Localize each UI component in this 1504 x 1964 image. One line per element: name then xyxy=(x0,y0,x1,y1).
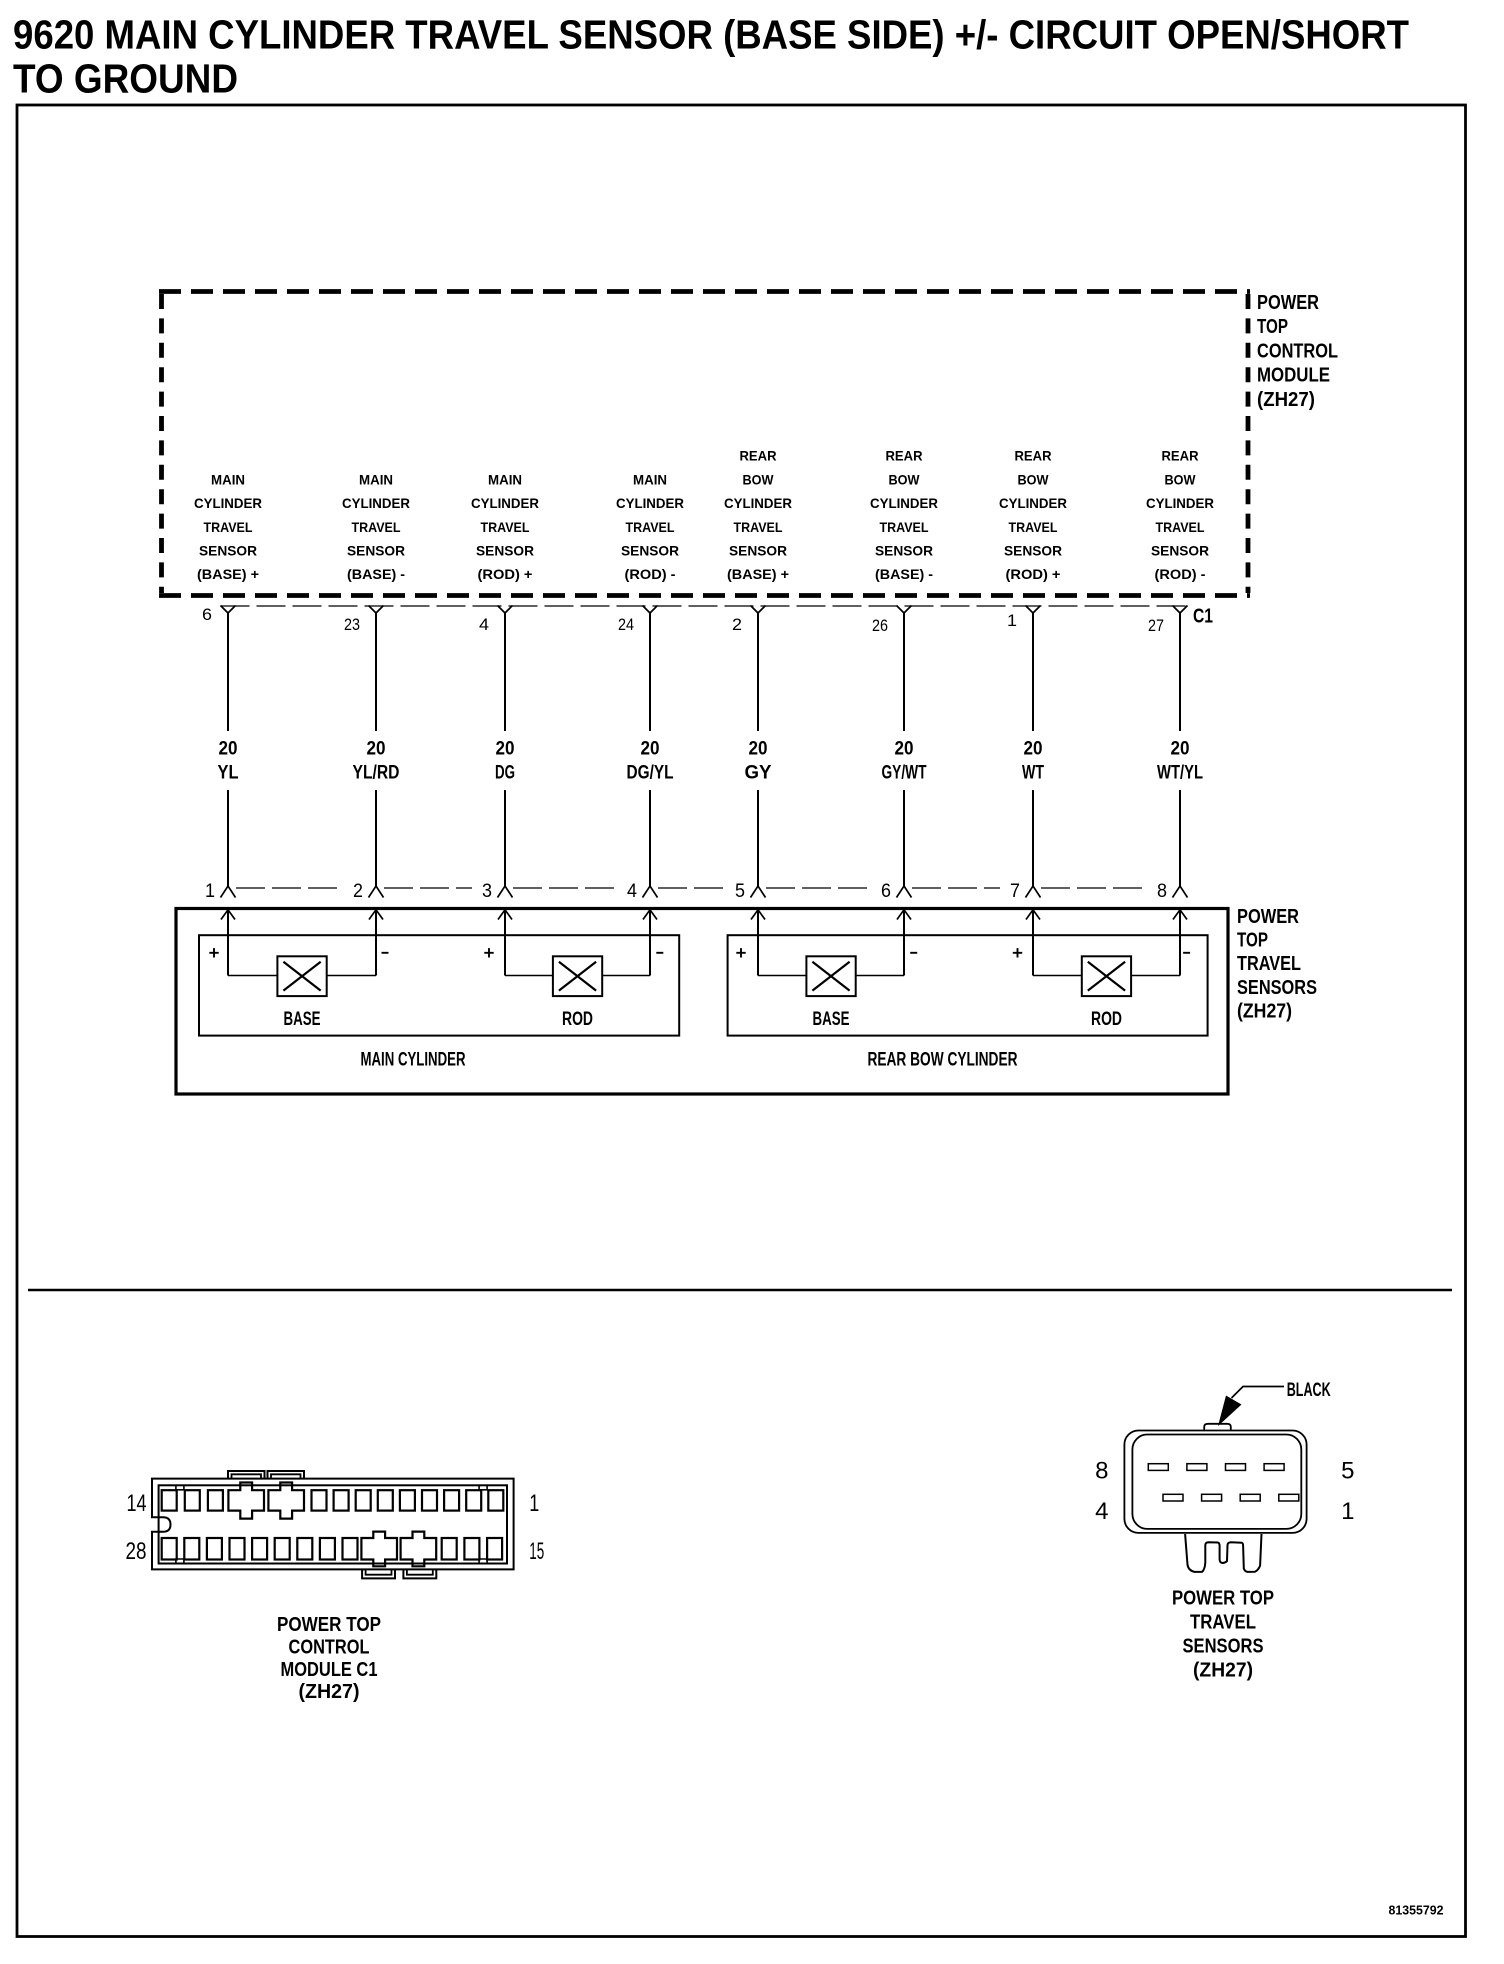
svg-text:(ROD) +: (ROD) + xyxy=(1006,566,1061,582)
svg-text:9620 MAIN CYLINDER TRAVEL SENS: 9620 MAIN CYLINDER TRAVEL SENSOR (BASE S… xyxy=(13,12,1409,58)
svg-text:(BASE) +: (BASE) + xyxy=(197,566,259,582)
svg-text:ROD: ROD xyxy=(1091,1009,1122,1030)
svg-text:(ZH27): (ZH27) xyxy=(1237,1000,1292,1022)
svg-text:26: 26 xyxy=(872,616,888,635)
svg-text:TRAVEL: TRAVEL xyxy=(1190,1612,1256,1634)
svg-text:SENSOR: SENSOR xyxy=(621,543,679,559)
svg-text:(ZH27): (ZH27) xyxy=(299,1681,360,1703)
svg-text:BOW: BOW xyxy=(743,471,775,487)
svg-text:1: 1 xyxy=(1007,611,1017,630)
svg-text:POWER: POWER xyxy=(1237,906,1299,928)
svg-text:20: 20 xyxy=(367,739,386,760)
svg-text:2: 2 xyxy=(353,881,363,902)
svg-text:TRAVEL: TRAVEL xyxy=(880,519,929,535)
svg-text:REAR: REAR xyxy=(1162,448,1199,464)
svg-text:BOW: BOW xyxy=(1018,471,1050,487)
svg-text:81355792: 81355792 xyxy=(1389,1903,1444,1918)
svg-text:CYLINDER: CYLINDER xyxy=(724,495,792,511)
svg-text:3: 3 xyxy=(482,881,492,902)
svg-text:SENSOR: SENSOR xyxy=(1151,543,1209,559)
svg-text:4: 4 xyxy=(627,881,637,902)
svg-text:20: 20 xyxy=(641,739,660,760)
svg-text:POWER: POWER xyxy=(1257,292,1319,314)
svg-text:TRAVEL: TRAVEL xyxy=(1156,519,1205,535)
svg-text:15: 15 xyxy=(529,1538,544,1565)
svg-text:28: 28 xyxy=(126,1538,147,1565)
svg-text:(ZH27): (ZH27) xyxy=(1193,1659,1253,1681)
svg-text:TRAVEL: TRAVEL xyxy=(1237,953,1301,975)
svg-text:TOP: TOP xyxy=(1257,316,1288,338)
svg-text:20: 20 xyxy=(895,739,914,760)
svg-text:GY: GY xyxy=(745,763,772,784)
svg-text:20: 20 xyxy=(219,739,238,760)
svg-text:MAIN CYLINDER: MAIN CYLINDER xyxy=(361,1050,466,1071)
svg-text:CYLINDER: CYLINDER xyxy=(1146,495,1214,511)
svg-text:SENSORS: SENSORS xyxy=(1183,1636,1264,1658)
svg-text:(ROD) +: (ROD) + xyxy=(478,566,533,582)
svg-text:MODULE C1: MODULE C1 xyxy=(281,1659,378,1681)
svg-text:SENSOR: SENSOR xyxy=(199,543,257,559)
svg-text:SENSORS: SENSORS xyxy=(1237,977,1317,999)
svg-text:8: 8 xyxy=(1157,881,1167,902)
svg-text:REAR: REAR xyxy=(740,448,777,464)
svg-text:TOP: TOP xyxy=(1237,930,1268,952)
svg-text:4: 4 xyxy=(479,615,489,634)
svg-text:GY/WT: GY/WT xyxy=(882,763,927,784)
svg-text:REAR: REAR xyxy=(1015,448,1052,464)
svg-text:TRAVEL: TRAVEL xyxy=(734,519,783,535)
svg-text:WT: WT xyxy=(1022,763,1044,784)
svg-text:(BASE) +: (BASE) + xyxy=(727,566,789,582)
svg-text:2: 2 xyxy=(732,615,742,634)
svg-text:5: 5 xyxy=(735,881,745,902)
svg-text:23: 23 xyxy=(344,615,360,634)
svg-text:TRAVEL: TRAVEL xyxy=(481,519,530,535)
svg-text:TRAVEL: TRAVEL xyxy=(626,519,675,535)
svg-text:POWER TOP: POWER TOP xyxy=(1172,1588,1274,1610)
svg-text:BASE: BASE xyxy=(284,1009,321,1030)
svg-text:DG: DG xyxy=(495,763,515,784)
svg-text:BLACK: BLACK xyxy=(1287,1380,1331,1401)
svg-text:CYLINDER: CYLINDER xyxy=(342,495,410,511)
svg-text:4: 4 xyxy=(1095,1498,1108,1525)
svg-text:MAIN: MAIN xyxy=(211,471,245,487)
svg-text:BASE: BASE xyxy=(813,1009,850,1030)
svg-text:SENSOR: SENSOR xyxy=(875,543,933,559)
svg-text:C1: C1 xyxy=(1193,606,1213,628)
svg-text:(BASE) -: (BASE) - xyxy=(347,566,405,582)
svg-text:POWER TOP: POWER TOP xyxy=(277,1614,381,1636)
svg-text:ROD: ROD xyxy=(562,1009,593,1030)
svg-text:SENSOR: SENSOR xyxy=(1004,543,1062,559)
svg-text:MAIN: MAIN xyxy=(633,471,667,487)
svg-text:YL/RD: YL/RD xyxy=(353,763,400,784)
svg-text:SENSOR: SENSOR xyxy=(729,543,787,559)
svg-text:20: 20 xyxy=(1171,739,1190,760)
svg-text:(ZH27): (ZH27) xyxy=(1257,389,1315,411)
svg-text:5: 5 xyxy=(1341,1457,1354,1484)
svg-text:20: 20 xyxy=(749,739,768,760)
svg-text:CONTROL: CONTROL xyxy=(1257,340,1338,362)
svg-text:MAIN: MAIN xyxy=(359,471,393,487)
svg-text:6: 6 xyxy=(881,881,891,902)
svg-text:TRAVEL: TRAVEL xyxy=(352,519,401,535)
svg-text:CYLINDER: CYLINDER xyxy=(471,495,539,511)
svg-text:YL: YL xyxy=(218,763,239,784)
svg-text:(ROD) -: (ROD) - xyxy=(625,566,676,582)
svg-text:BOW: BOW xyxy=(889,471,921,487)
svg-text:14: 14 xyxy=(127,1490,147,1517)
svg-text:27: 27 xyxy=(1148,616,1164,635)
svg-text:REAR BOW CYLINDER: REAR BOW CYLINDER xyxy=(868,1050,1018,1071)
svg-text:TRAVEL: TRAVEL xyxy=(1009,519,1058,535)
svg-text:BOW: BOW xyxy=(1165,471,1197,487)
svg-text:CYLINDER: CYLINDER xyxy=(870,495,938,511)
svg-text:CYLINDER: CYLINDER xyxy=(616,495,684,511)
svg-text:SENSOR: SENSOR xyxy=(347,543,405,559)
svg-text:REAR: REAR xyxy=(886,448,923,464)
svg-text:SENSOR: SENSOR xyxy=(476,543,534,559)
svg-text:8: 8 xyxy=(1095,1457,1108,1484)
svg-text:MAIN: MAIN xyxy=(488,471,522,487)
svg-text:MODULE: MODULE xyxy=(1257,365,1330,387)
svg-text:1: 1 xyxy=(205,881,215,902)
svg-text:TO GROUND: TO GROUND xyxy=(13,56,238,102)
svg-text:WT/YL: WT/YL xyxy=(1157,763,1203,784)
svg-text:20: 20 xyxy=(496,739,515,760)
svg-text:1: 1 xyxy=(529,1490,539,1517)
svg-text:TRAVEL: TRAVEL xyxy=(204,519,253,535)
svg-text:CYLINDER: CYLINDER xyxy=(999,495,1067,511)
svg-text:(BASE) -: (BASE) - xyxy=(875,566,933,582)
svg-text:7: 7 xyxy=(1010,881,1020,902)
svg-text:20: 20 xyxy=(1024,739,1043,760)
svg-text:6: 6 xyxy=(202,605,212,624)
svg-text:24: 24 xyxy=(618,615,634,634)
svg-text:DG/YL: DG/YL xyxy=(627,763,674,784)
svg-text:CYLINDER: CYLINDER xyxy=(194,495,262,511)
svg-text:CONTROL: CONTROL xyxy=(289,1636,370,1658)
svg-text:(ROD) -: (ROD) - xyxy=(1155,566,1206,582)
svg-text:1: 1 xyxy=(1341,1498,1354,1525)
